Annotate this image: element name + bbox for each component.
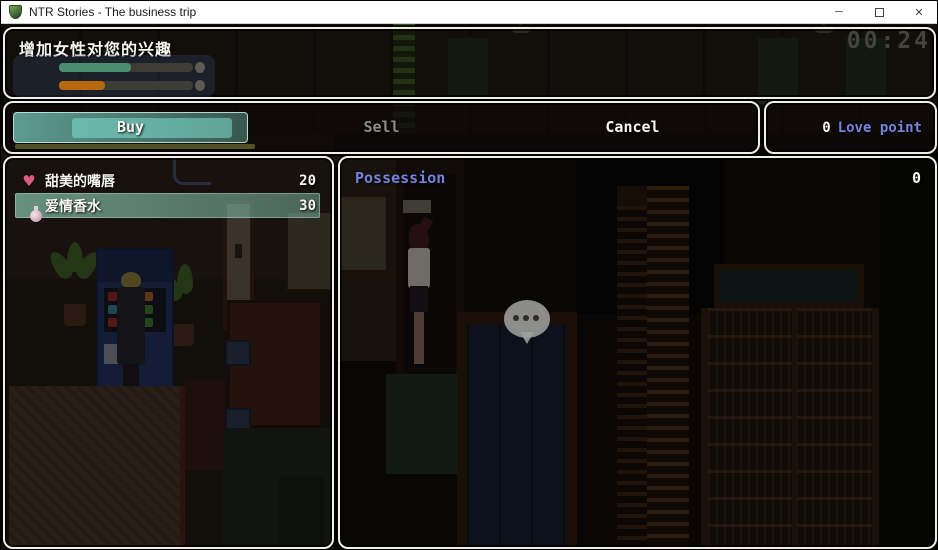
maximize-icon [875,8,884,17]
background-gauge-glimpse [15,144,255,149]
item-row-love-perfume[interactable]: 爱情香水 30 [15,193,320,218]
app-icon [9,5,22,19]
game-window: NTR Stories - The business trip ─ ✕ [0,0,938,550]
minimize-button[interactable]: ─ [819,1,859,23]
window-title: NTR Stories - The business trip [29,5,196,19]
item-name: 爱情香水 [45,196,101,216]
game-viewport: 增加女性对您的兴趣 00:24 Buy [1,24,938,550]
item-name: 甜美的嘴唇 [45,171,115,191]
item-price: 30 [299,198,316,214]
maximize-button[interactable] [859,1,899,23]
gauge-cap-icon [195,62,205,73]
game-timer: 00:24 [847,28,931,54]
close-button[interactable]: ✕ [899,1,938,23]
currency-unit: Love point [838,120,922,136]
item-row-sweet-lips[interactable]: ♥ 甜美的嘴唇 20 [15,168,320,193]
affection-status-panel [13,55,215,97]
arousal-gauge [59,81,193,90]
shop-item-list-window: ♥ 甜美的嘴唇 20 爱情香水 30 [3,156,334,549]
gauge-cap-icon [195,80,205,91]
title-bar: NTR Stories - The business trip ─ ✕ [1,1,938,24]
heart-icon: ♥ [19,172,39,190]
affection-gauge [59,63,193,72]
shop-command-window: Buy Sell Cancel [3,101,760,154]
item-price: 20 [299,173,316,189]
buy-command[interactable]: Buy [5,112,256,143]
sell-command[interactable]: Sell [256,112,507,143]
cancel-command[interactable]: Cancel [507,112,758,143]
currency-window: 0 Love point [764,101,937,154]
possession-label: Possession [355,169,445,187]
possession-window: Possession 0 [338,156,937,549]
possession-value: 0 [912,169,921,187]
currency-amount: 0 [822,120,830,136]
help-window: 增加女性对您的兴趣 [3,27,936,99]
